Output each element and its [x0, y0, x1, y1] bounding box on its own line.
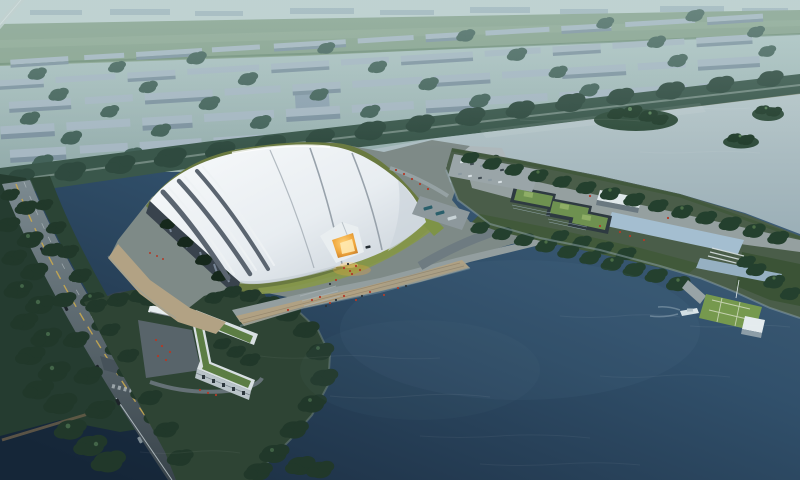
light-spill-core	[340, 262, 358, 268]
aerial-rendering-lakeside-arena	[0, 0, 800, 480]
haze-overlay	[0, 0, 800, 150]
rendering-canvas	[0, 0, 800, 480]
